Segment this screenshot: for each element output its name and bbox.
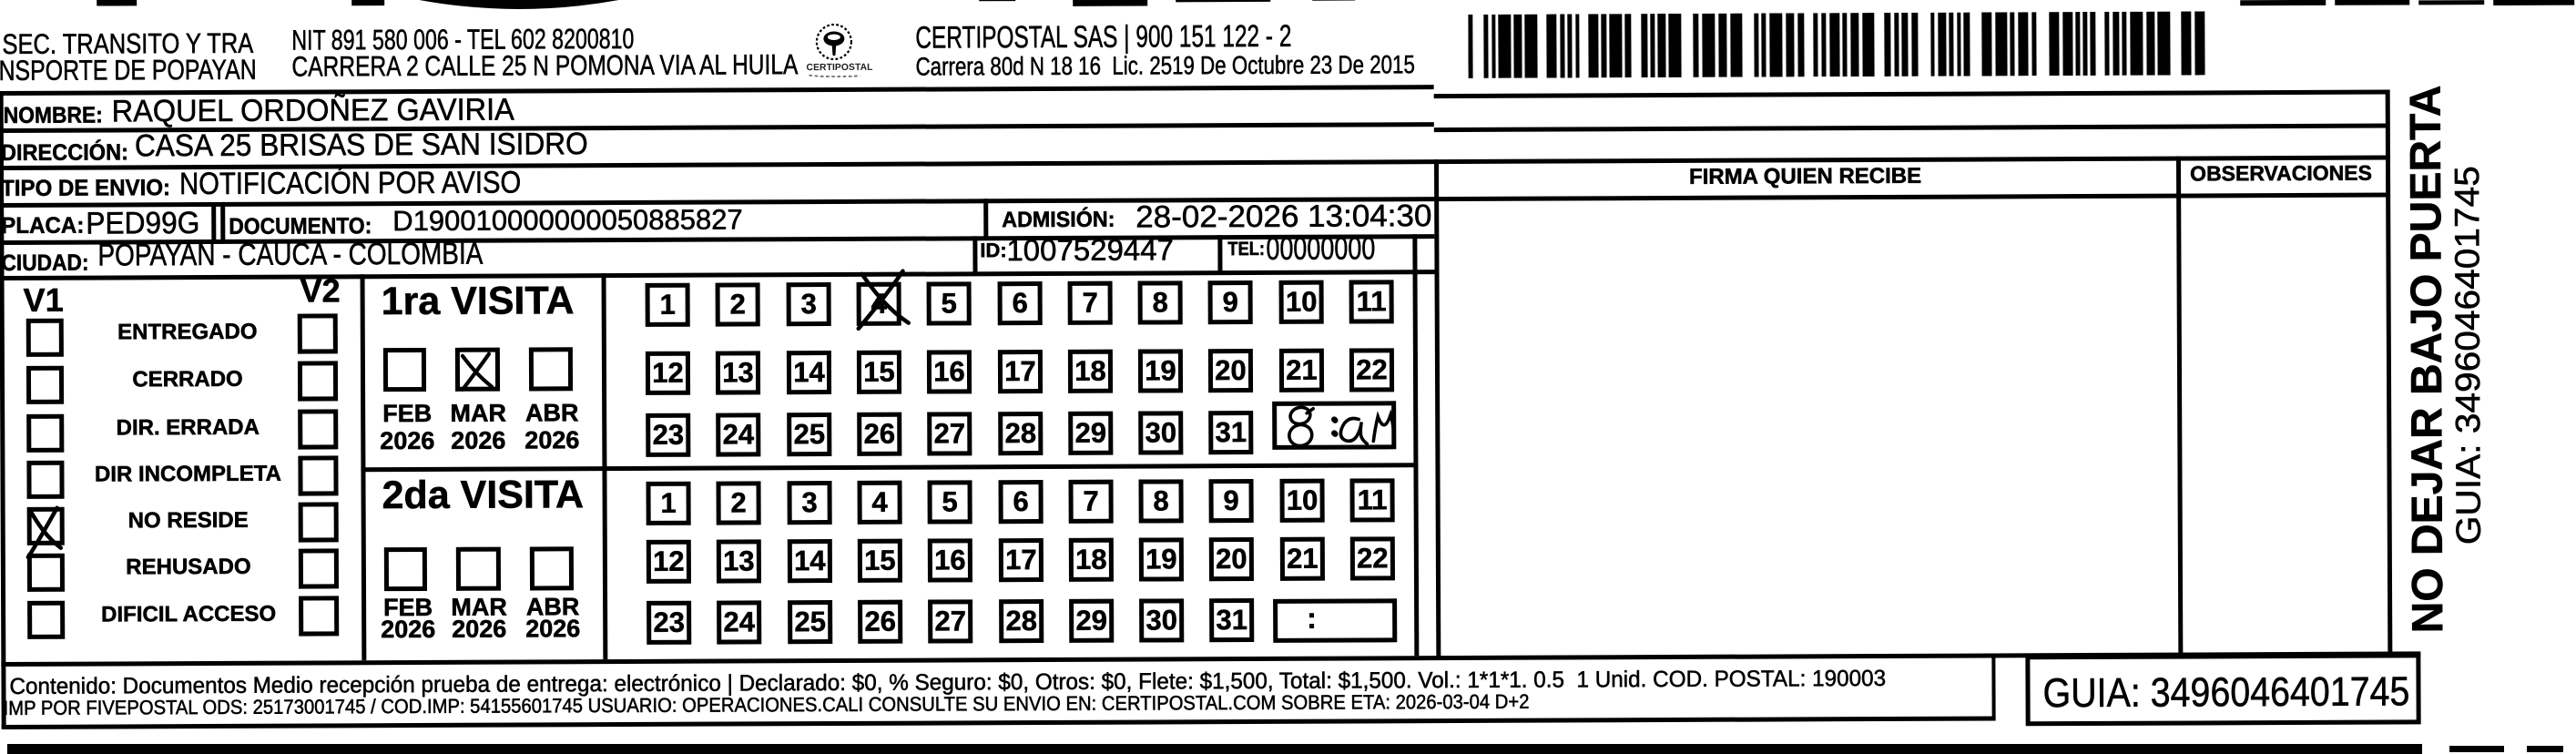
svg-text:CERTIPOSTAL: CERTIPOSTAL [807,63,873,73]
